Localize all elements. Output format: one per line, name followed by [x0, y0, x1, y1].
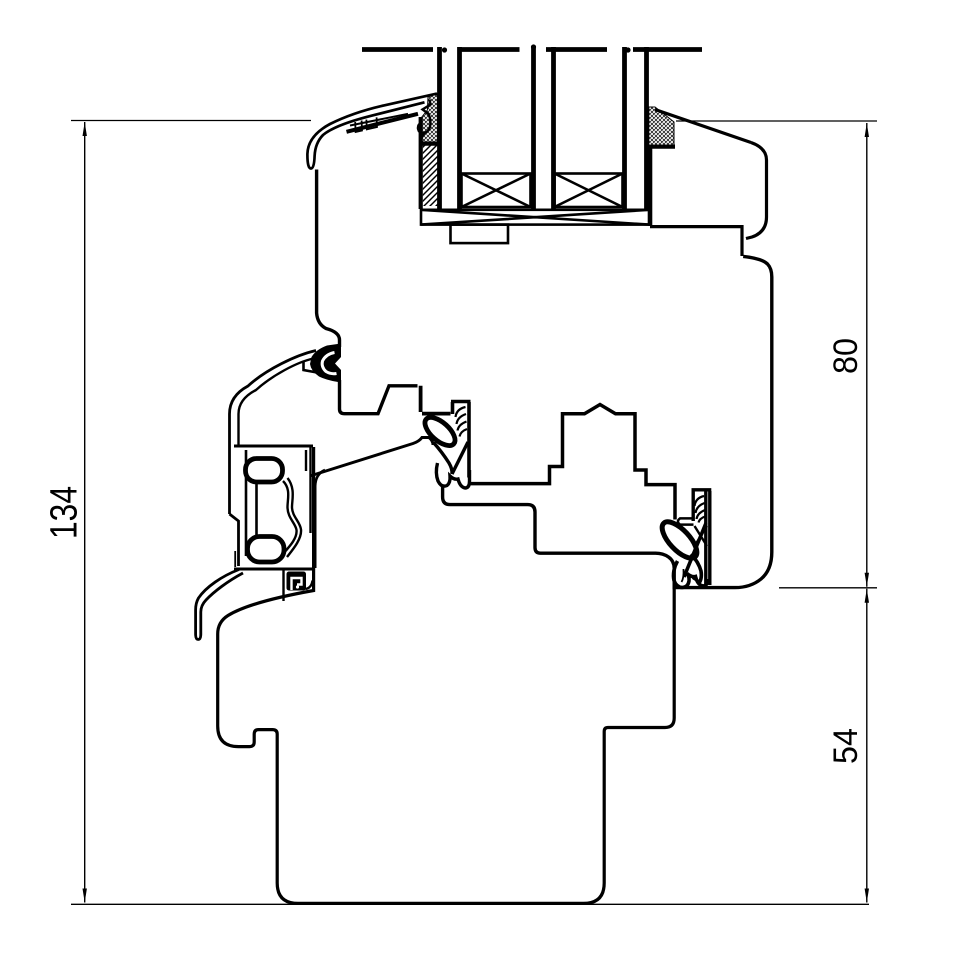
svg-text:134: 134	[44, 486, 86, 539]
svg-text:80: 80	[827, 338, 865, 374]
svg-text:54: 54	[827, 728, 865, 764]
